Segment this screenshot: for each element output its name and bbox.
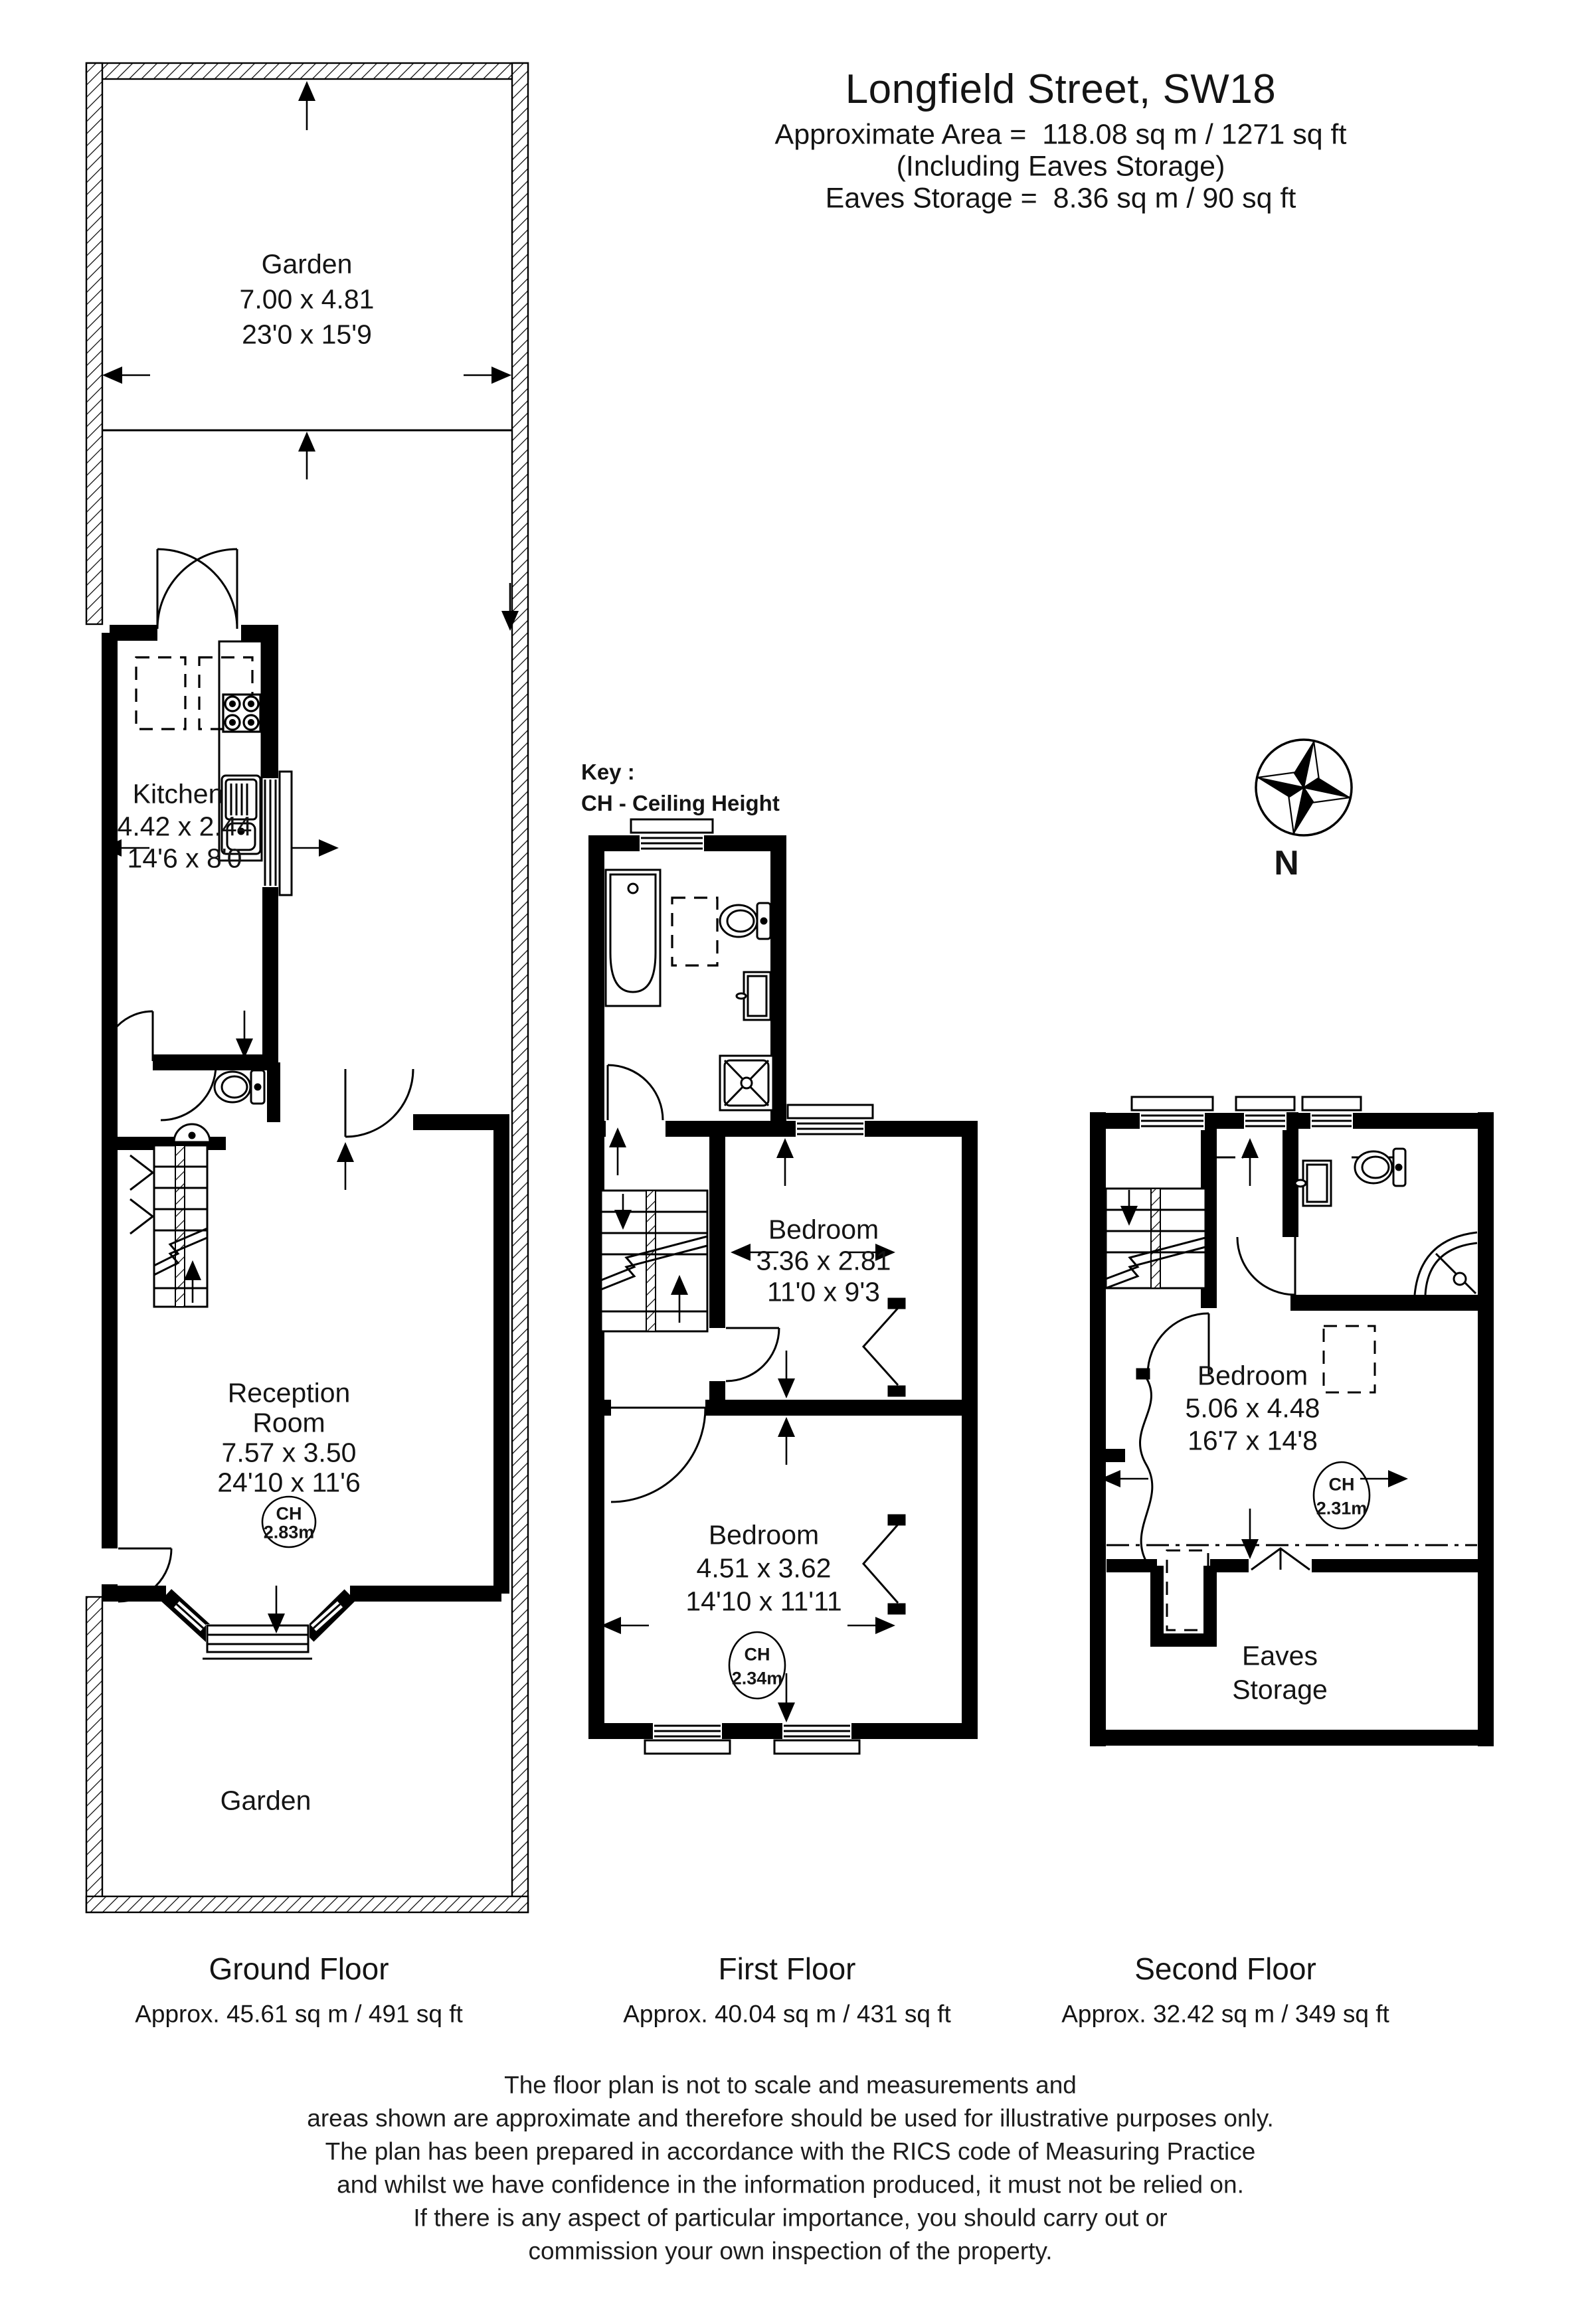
eaves-storage-label-1: Eaves [1242, 1643, 1318, 1670]
second-ch-label: CH [1329, 1476, 1355, 1494]
page-title: Longfield Street, SW18 [845, 69, 1277, 110]
french-doors [157, 549, 237, 629]
disclaimer-line-5: If there is any aspect of particular imp… [413, 2206, 1167, 2230]
bedroom-front-name: Bedroom [709, 1522, 819, 1549]
ground-stairs [130, 1145, 207, 1307]
hob-icon [223, 695, 260, 732]
second-bedroom-imperial: 16'7 x 14'8 [1188, 1428, 1318, 1455]
disclaimer-line-6: commission your own inspection of the pr… [528, 2239, 1052, 2264]
kitchen-window [261, 772, 292, 895]
second-bedroom-metric: 5.06 x 4.48 [1186, 1395, 1320, 1422]
reception-metric: 7.57 x 3.50 [222, 1440, 357, 1467]
bedroom-rear-imperial: 11'0 x 9'3 [767, 1279, 880, 1306]
front-garden-name: Garden [221, 1787, 311, 1815]
second-ch-value: 2.31m [1316, 1500, 1368, 1518]
disclaimer-line-2: areas shown are approximate and therefor… [307, 2106, 1273, 2131]
key-ch-item: CH - Ceiling Height [581, 792, 780, 814]
first-floor-area: Approx. 40.04 sq m / 431 sq ft [623, 2002, 951, 2027]
disclaimer-line-3: The plan has been prepared in accordance… [325, 2139, 1256, 2164]
rear-garden-name: Garden [262, 251, 353, 278]
ground-floor-caption: Ground Floor [209, 1953, 389, 1984]
first-ch-label: CH [745, 1646, 770, 1664]
shower-icon [720, 1056, 773, 1110]
second-floor-caption: Second Floor [1134, 1953, 1316, 1984]
disclaimer-line-1: The floor plan is not to scale and measu… [504, 2073, 1077, 2098]
bathroom-toilet-icon [720, 903, 770, 939]
ground-floor-area: Approx. 45.61 sq m / 491 sq ft [135, 2002, 463, 2027]
wc-basin-icon [174, 1124, 210, 1142]
compass-north-label: N [1274, 846, 1299, 880]
ground-ch-value: 2.83m [264, 1524, 315, 1542]
first-ch-circle [729, 1632, 785, 1699]
kitchen-imperial: 14'6 x 8'0 [128, 845, 242, 872]
eaves-storage-line: Eaves Storage = 8.36 sq m / 90 sq ft [826, 185, 1296, 213]
ensuite-toilet-icon [1355, 1149, 1405, 1186]
ground-ch-label: CH [276, 1505, 302, 1523]
approximate-area-line: Approximate Area = 118.08 sq m / 1271 sq… [775, 121, 1347, 149]
second-stairs [1106, 1189, 1205, 1288]
second-windows [1132, 1097, 1361, 1130]
bedroom-rear-metric: 3.36 x 2.81 [756, 1248, 891, 1275]
reception-name-2: Room [252, 1410, 325, 1437]
second-partition-walls [1098, 1455, 1478, 1640]
second-bedroom-name: Bedroom [1197, 1363, 1308, 1390]
kitchen-metric: 4.42 x 2.44 [118, 813, 252, 841]
reception-name-1: Reception [228, 1380, 351, 1407]
bathroom-dashed-feature [672, 898, 717, 965]
bedroom-rear-name: Bedroom [768, 1216, 879, 1244]
disclaimer-line-4: and whilst we have confidence in the inf… [337, 2173, 1244, 2197]
key-heading: Key : [581, 761, 635, 783]
first-floor-caption: First Floor [719, 1953, 856, 1984]
floorplan-page: Longfield Street, SW18 Approximate Area … [0, 0, 1594, 2324]
rear-garden-metric: 7.00 x 4.81 [240, 286, 375, 313]
second-ch-circle [1314, 1462, 1370, 1529]
bathtub-icon [606, 870, 660, 1006]
bedroom-front-metric: 4.51 x 3.62 [697, 1555, 832, 1582]
reception-imperial: 24'10 x 11'6 [217, 1469, 361, 1497]
bathroom-cabinet-icon [737, 972, 770, 1020]
including-eaves-line: (Including Eaves Storage) [897, 153, 1225, 181]
bedroom-front-imperial: 14'10 x 11'11 [685, 1588, 841, 1616]
kitchen-name: Kitchen [133, 781, 224, 808]
first-wardrobes [863, 1299, 905, 1614]
corner-shower-icon [1415, 1232, 1477, 1295]
wc-toilet-icon [215, 1070, 264, 1104]
ensuite-sink-icon [1295, 1161, 1331, 1206]
eaves-storage-label-2: Storage [1232, 1677, 1328, 1704]
first-ch-value: 2.34m [732, 1670, 783, 1688]
second-floor-area: Approx. 32.42 sq m / 349 sq ft [1061, 2002, 1389, 2027]
rear-garden-imperial: 23'0 x 15'9 [242, 321, 372, 349]
compass-icon [1247, 731, 1361, 845]
